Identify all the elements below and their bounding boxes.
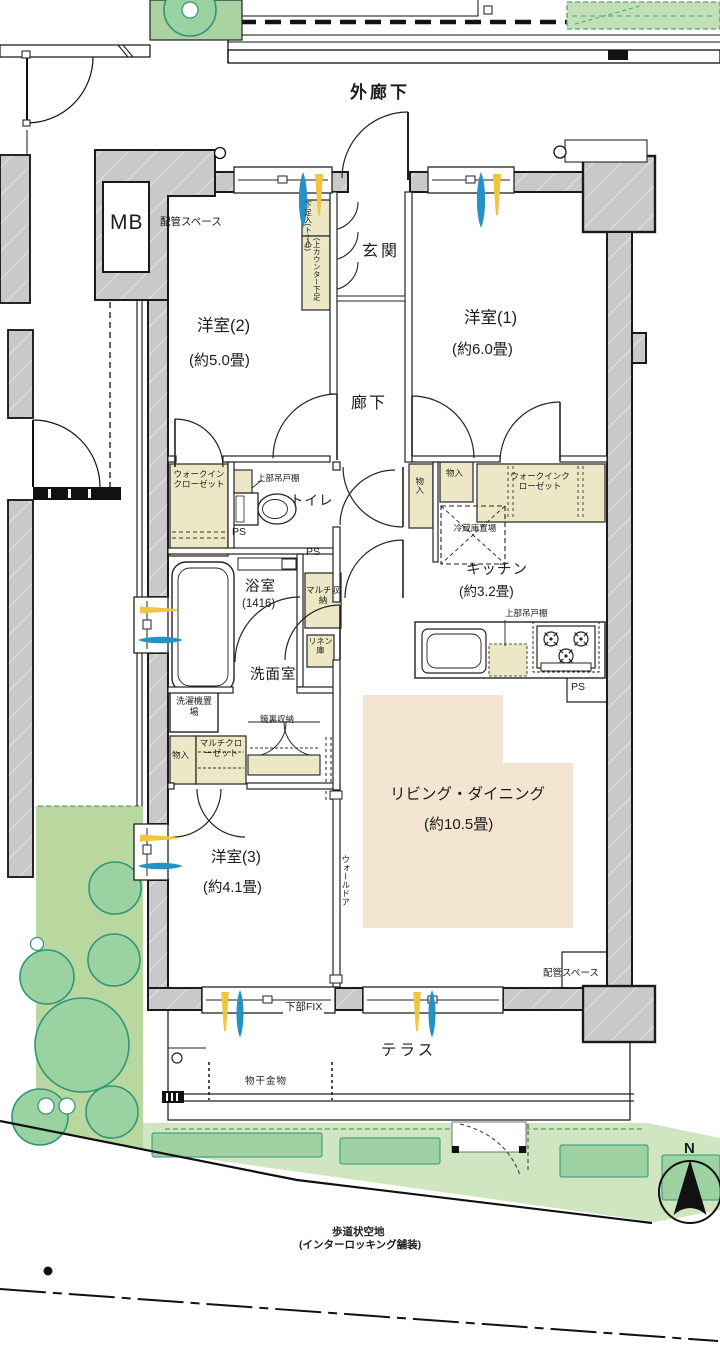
- planters: [150, 0, 720, 40]
- floorplan-page: 外廊下 MB 配管スペース 玄関 下足入(トール) (上カウンター下足入) 洋室…: [0, 0, 720, 1350]
- label-ps-kitchen: PS: [571, 682, 585, 694]
- label-terrace: テラス: [381, 1042, 436, 1059]
- label-mirror-cabinet: 鏡裏収納: [260, 715, 294, 724]
- label-living-name: リビング・ダイニング: [390, 786, 545, 803]
- label-pipe-space-top: 配管スペース: [160, 217, 222, 229]
- label-multi-closet: マルチクローゼット: [199, 738, 243, 758]
- label-ps-bath: PS: [306, 547, 320, 559]
- label-monoire-hall: 物入: [414, 477, 424, 517]
- label-western2-name: 洋室(2): [197, 317, 250, 335]
- label-entrance: 玄関: [362, 243, 400, 261]
- label-shoe-counter: (上カウンター下足入): [303, 238, 320, 306]
- label-hallway: 廊下: [351, 395, 387, 413]
- label-western2-size: (約5.0畳): [189, 353, 250, 370]
- label-monoire-small: 物入: [446, 469, 463, 478]
- label-living-size: (約10.5畳): [424, 817, 493, 834]
- label-multi-storage: マルチ収納: [306, 585, 340, 605]
- label-western3-name: 洋室(3): [211, 849, 261, 866]
- label-wall-door: ウォールドア: [340, 855, 350, 917]
- label-upper-cabinet-kitchen: 上部吊戸棚: [505, 609, 548, 618]
- label-ps-toilet: PS: [232, 527, 246, 539]
- label-kitchen-name: キッチン: [466, 563, 528, 579]
- label-pipe-space-bottom: 配管スペース: [543, 969, 599, 979]
- label-fridge: 冷蔵庫置場: [447, 523, 503, 533]
- label-drying-fixture: 物干金物: [245, 1077, 287, 1087]
- label-toilet: トイレ: [290, 494, 334, 509]
- label-washroom: 洗面室: [250, 668, 297, 684]
- label-linen: リネン庫: [307, 637, 334, 656]
- label-bath-name: 浴室: [245, 580, 276, 596]
- label-washer: 洗濯機置場: [172, 696, 216, 717]
- label-walkway-line1: 歩道状空地: [332, 1227, 385, 1239]
- label-lower-fix: 下部FIX: [283, 1002, 324, 1014]
- floorplan-drawing: [0, 0, 720, 1350]
- terrace-area: [162, 1010, 634, 1120]
- label-wic-left: ウォークインクローゼット: [172, 469, 226, 489]
- label-bath-size: (1416): [242, 598, 275, 611]
- label-outer-corridor: 外廊下: [350, 84, 410, 103]
- label-western1-name: 洋室(1): [464, 309, 517, 327]
- label-monoire-w3: 物入: [172, 751, 189, 760]
- label-western1-size: (約6.0畳): [452, 342, 513, 359]
- label-walkway-line2: (インターロッキング舗装): [299, 1240, 421, 1252]
- label-mb: MB: [110, 211, 144, 234]
- label-western3-size: (約4.1畳): [203, 881, 262, 897]
- label-wic-right: ウォークインクローゼット: [508, 471, 572, 491]
- label-upper-cabinet-toilet: 上部吊戸棚: [257, 474, 300, 483]
- label-kitchen-size: (約3.2畳): [459, 585, 514, 600]
- label-compass-north: N: [684, 1141, 695, 1158]
